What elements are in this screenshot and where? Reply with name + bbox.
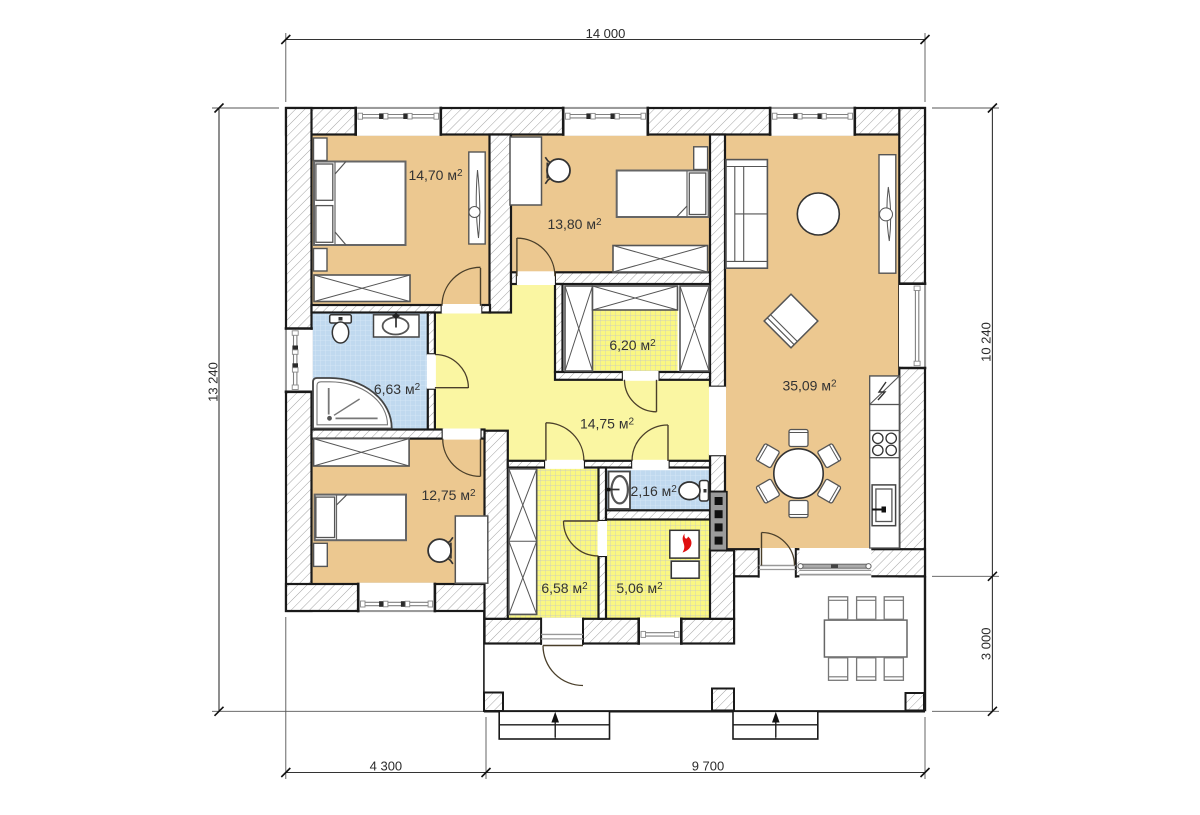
svg-text:35,09 м2: 35,09 м2 — [782, 378, 837, 394]
svg-text:9 700: 9 700 — [692, 759, 725, 774]
svg-text:13 240: 13 240 — [205, 362, 220, 402]
svg-text:6,63 м2: 6,63 м2 — [374, 381, 421, 397]
svg-text:13,80 м2: 13,80 м2 — [547, 216, 602, 232]
svg-text:14,70 м2: 14,70 м2 — [408, 167, 463, 183]
svg-text:10 240: 10 240 — [979, 322, 994, 362]
svg-text:12,75 м2: 12,75 м2 — [421, 487, 476, 503]
svg-text:2,16 м2: 2,16 м2 — [631, 483, 678, 499]
svg-text:14 000: 14 000 — [586, 26, 626, 41]
svg-text:6,20 м2: 6,20 м2 — [609, 337, 656, 353]
svg-text:3 000: 3 000 — [979, 628, 994, 661]
svg-text:14,75 м2: 14,75 м2 — [580, 416, 635, 432]
svg-text:6,58 м2: 6,58 м2 — [541, 580, 588, 596]
svg-text:5,06 м2: 5,06 м2 — [616, 580, 663, 596]
svg-text:4 300: 4 300 — [370, 759, 403, 774]
